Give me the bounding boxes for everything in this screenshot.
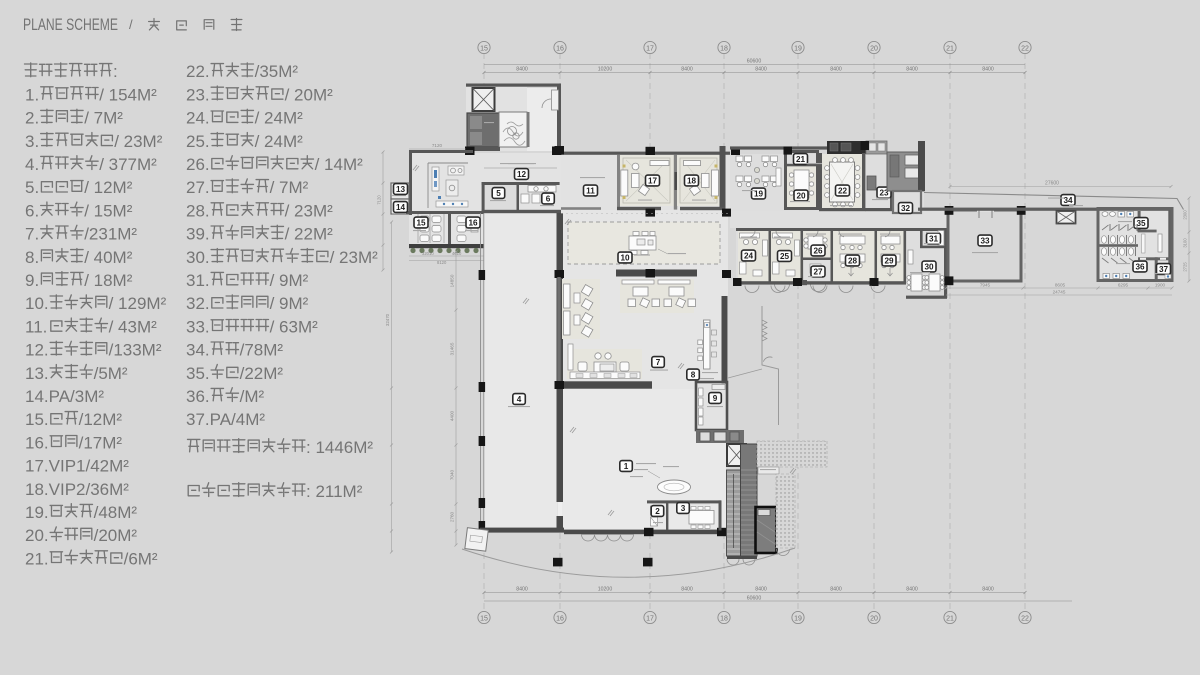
svg-text:8400: 8400: [755, 587, 767, 593]
svg-text:/12M²: /12M²: [79, 410, 123, 429]
svg-text:27: 27: [813, 268, 823, 277]
svg-text:8400: 8400: [982, 587, 994, 593]
svg-text:/ 40M²: / 40M²: [84, 248, 133, 267]
svg-text:25.: 25.: [186, 132, 210, 151]
svg-text:22: 22: [1021, 45, 1029, 52]
svg-text:/48M²: /48M²: [94, 503, 138, 522]
svg-text:34.: 34.: [186, 341, 210, 360]
svg-text:/22M²: /22M²: [240, 364, 284, 383]
svg-text::: :: [113, 62, 118, 81]
svg-text:28: 28: [848, 257, 858, 266]
svg-text:/231M²: /231M²: [84, 225, 137, 244]
svg-text:/: /: [129, 17, 133, 32]
svg-text:22: 22: [1021, 615, 1029, 622]
svg-text:14.PA/3M²: 14.PA/3M²: [25, 387, 104, 406]
svg-text:60600: 60600: [747, 596, 762, 602]
svg-text:/20M²: /20M²: [94, 526, 138, 545]
svg-text:22.: 22.: [186, 62, 210, 81]
svg-text:9: 9: [713, 394, 718, 403]
svg-text:/17M²: /17M²: [79, 433, 123, 452]
svg-text:34: 34: [1063, 196, 1073, 205]
svg-text:8400: 8400: [681, 67, 693, 73]
svg-text:24745: 24745: [1053, 290, 1066, 295]
svg-text:1: 1: [624, 462, 629, 471]
svg-text:8400: 8400: [982, 67, 994, 73]
svg-text:26.: 26.: [186, 155, 210, 174]
svg-text:19: 19: [794, 45, 802, 52]
svg-text:31: 31: [929, 235, 939, 244]
svg-text:PLANE SCHEME: PLANE SCHEME: [23, 16, 118, 34]
svg-text:16: 16: [556, 615, 564, 622]
svg-text:60600: 60600: [747, 59, 762, 65]
svg-text:17: 17: [646, 615, 654, 622]
svg-text:37.PA/4M²: 37.PA/4M²: [186, 410, 265, 429]
svg-text:8.: 8.: [25, 248, 39, 267]
svg-text:32470: 32470: [385, 313, 390, 326]
svg-text:/ 63M²: / 63M²: [270, 317, 319, 336]
svg-text:8400: 8400: [906, 587, 918, 593]
svg-text:7040: 7040: [450, 469, 455, 480]
svg-text:/ 22M²: / 22M²: [285, 225, 334, 244]
svg-text:28.: 28.: [186, 201, 210, 220]
svg-text:27.: 27.: [186, 178, 210, 197]
svg-text:18: 18: [720, 45, 728, 52]
svg-text:9.: 9.: [25, 271, 39, 290]
svg-text:22: 22: [838, 187, 848, 196]
svg-text:3: 3: [681, 504, 686, 513]
svg-text:32: 32: [901, 204, 911, 213]
svg-text:/133M²: /133M²: [109, 341, 162, 360]
svg-text:2300: 2300: [1183, 210, 1188, 220]
svg-text:15: 15: [480, 615, 488, 622]
svg-text:18: 18: [687, 177, 697, 186]
svg-text:14850: 14850: [450, 274, 455, 287]
svg-text:37: 37: [1159, 265, 1169, 274]
svg-text:30.: 30.: [186, 248, 210, 267]
svg-text:/ 7M²: / 7M²: [270, 178, 309, 197]
svg-text:13.: 13.: [25, 364, 49, 383]
svg-text:/ 23M²: / 23M²: [330, 248, 379, 267]
svg-text:21.: 21.: [25, 549, 49, 568]
svg-text:7120: 7120: [377, 195, 382, 205]
svg-text:21: 21: [796, 155, 806, 164]
svg-text:20: 20: [796, 192, 806, 201]
svg-text:8400: 8400: [755, 67, 767, 73]
svg-text:12: 12: [517, 170, 527, 179]
svg-text:3.: 3.: [25, 132, 39, 151]
svg-text:17: 17: [646, 45, 654, 52]
svg-text:7.: 7.: [25, 225, 39, 244]
svg-text:/ 9M²: / 9M²: [270, 271, 309, 290]
svg-text:16: 16: [556, 45, 564, 52]
svg-text:7945: 7945: [980, 283, 991, 288]
svg-text:/35M²: /35M²: [255, 62, 299, 81]
svg-text:8400: 8400: [681, 587, 693, 593]
svg-text:17: 17: [648, 177, 658, 186]
svg-text:32010: 32010: [422, 251, 434, 256]
svg-text:32.: 32.: [186, 294, 210, 313]
svg-text:18.VIP2/36M²: 18.VIP2/36M²: [25, 480, 129, 499]
svg-text:/ 12M²: / 12M²: [84, 178, 133, 197]
svg-text:15: 15: [416, 219, 426, 228]
svg-text:2: 2: [655, 507, 660, 516]
svg-text:20.: 20.: [25, 526, 49, 545]
svg-text:3100: 3100: [1183, 238, 1188, 248]
svg-text:29: 29: [884, 257, 894, 266]
svg-text:35: 35: [1136, 219, 1146, 228]
svg-text:10200: 10200: [598, 67, 613, 73]
svg-text:18: 18: [720, 615, 728, 622]
svg-text:/M²: /M²: [240, 387, 265, 406]
svg-text:10.: 10.: [25, 294, 49, 313]
svg-text:1900: 1900: [1155, 283, 1166, 288]
svg-text:15: 15: [480, 45, 488, 52]
svg-text:23.: 23.: [186, 85, 210, 104]
svg-text:/ 377M²: / 377M²: [99, 155, 157, 174]
svg-text:14: 14: [396, 203, 406, 212]
svg-text:/ 7M²: / 7M²: [84, 109, 123, 128]
svg-text:/ 20M²: / 20M²: [285, 85, 334, 104]
svg-text:2.: 2.: [25, 109, 39, 128]
svg-text:24: 24: [744, 252, 754, 261]
svg-text:/ 24M²: / 24M²: [255, 132, 304, 151]
svg-text:17.VIP1/42M²: 17.VIP1/42M²: [25, 457, 129, 476]
svg-text:6.: 6.: [25, 201, 39, 220]
svg-text:13: 13: [396, 185, 406, 194]
svg-text:20: 20: [870, 615, 878, 622]
svg-text:/ 24M²: / 24M²: [255, 109, 304, 128]
svg-text:25: 25: [780, 252, 790, 261]
svg-text:33: 33: [980, 237, 990, 246]
svg-text:/ 129M²: / 129M²: [109, 294, 167, 313]
svg-text:19.: 19.: [25, 503, 49, 522]
svg-text:/ 18M²: / 18M²: [84, 271, 133, 290]
svg-text:24.: 24.: [186, 109, 210, 128]
svg-text:21: 21: [946, 615, 954, 622]
svg-text:16: 16: [468, 219, 478, 228]
svg-text:8400: 8400: [516, 67, 528, 73]
svg-text:21: 21: [946, 45, 954, 52]
svg-text:8400: 8400: [830, 67, 842, 73]
svg-text:/ 43M²: / 43M²: [109, 317, 158, 336]
svg-text:/ 15M²: / 15M²: [84, 201, 133, 220]
svg-text:7120: 7120: [432, 143, 443, 148]
svg-text:36.: 36.: [186, 387, 210, 406]
svg-text:31465: 31465: [450, 342, 455, 355]
svg-text:8400: 8400: [830, 587, 842, 593]
svg-text:/ 23M²: / 23M²: [114, 132, 163, 151]
svg-text:15.: 15.: [25, 410, 49, 429]
svg-text:19: 19: [794, 615, 802, 622]
svg-text:8400: 8400: [516, 587, 528, 593]
svg-text:10200: 10200: [598, 587, 613, 593]
svg-text:8: 8: [691, 371, 696, 380]
svg-text:2725: 2725: [1183, 262, 1188, 272]
svg-text:: 1446M²: : 1446M²: [306, 438, 373, 457]
svg-text:33.: 33.: [186, 317, 210, 336]
svg-text:39.: 39.: [186, 225, 210, 244]
svg-text:/ 14M²: / 14M²: [315, 155, 364, 174]
svg-text:/ 154M²: / 154M²: [99, 85, 157, 104]
svg-text:4.: 4.: [25, 155, 39, 174]
svg-text:5.: 5.: [25, 178, 39, 197]
svg-text:: 211M²: : 211M²: [306, 482, 363, 501]
svg-text:2760: 2760: [450, 511, 455, 522]
svg-text:27600: 27600: [1045, 181, 1059, 187]
svg-text:8400: 8400: [906, 67, 918, 73]
svg-text:12.: 12.: [25, 341, 49, 360]
svg-text:8120: 8120: [437, 260, 447, 265]
svg-text:/ 23M²: / 23M²: [285, 201, 334, 220]
svg-text:16.: 16.: [25, 433, 49, 452]
svg-text:7: 7: [656, 358, 661, 367]
svg-text:11.: 11.: [25, 317, 47, 336]
svg-text:36: 36: [1135, 263, 1145, 272]
svg-text:/78M²: /78M²: [240, 341, 284, 360]
svg-text:35.: 35.: [186, 364, 210, 383]
svg-text:4: 4: [517, 395, 522, 404]
svg-text:/5M²: /5M²: [94, 364, 128, 383]
svg-text:5: 5: [496, 189, 501, 198]
svg-text:20: 20: [870, 45, 878, 52]
svg-text:11: 11: [586, 187, 595, 196]
svg-text:26: 26: [813, 247, 823, 256]
svg-text:1.: 1.: [25, 85, 39, 104]
svg-text:6295: 6295: [1118, 283, 1129, 288]
svg-text:8605: 8605: [1055, 283, 1066, 288]
svg-text:10: 10: [620, 254, 630, 263]
svg-text:30: 30: [924, 263, 934, 272]
svg-text:4400: 4400: [450, 410, 455, 421]
svg-text:6: 6: [546, 195, 551, 204]
svg-text:/6M²: /6M²: [124, 549, 158, 568]
svg-text:/ 9M²: / 9M²: [270, 294, 309, 313]
svg-text:4610: 4610: [452, 251, 462, 256]
svg-text:31.: 31.: [186, 271, 210, 290]
